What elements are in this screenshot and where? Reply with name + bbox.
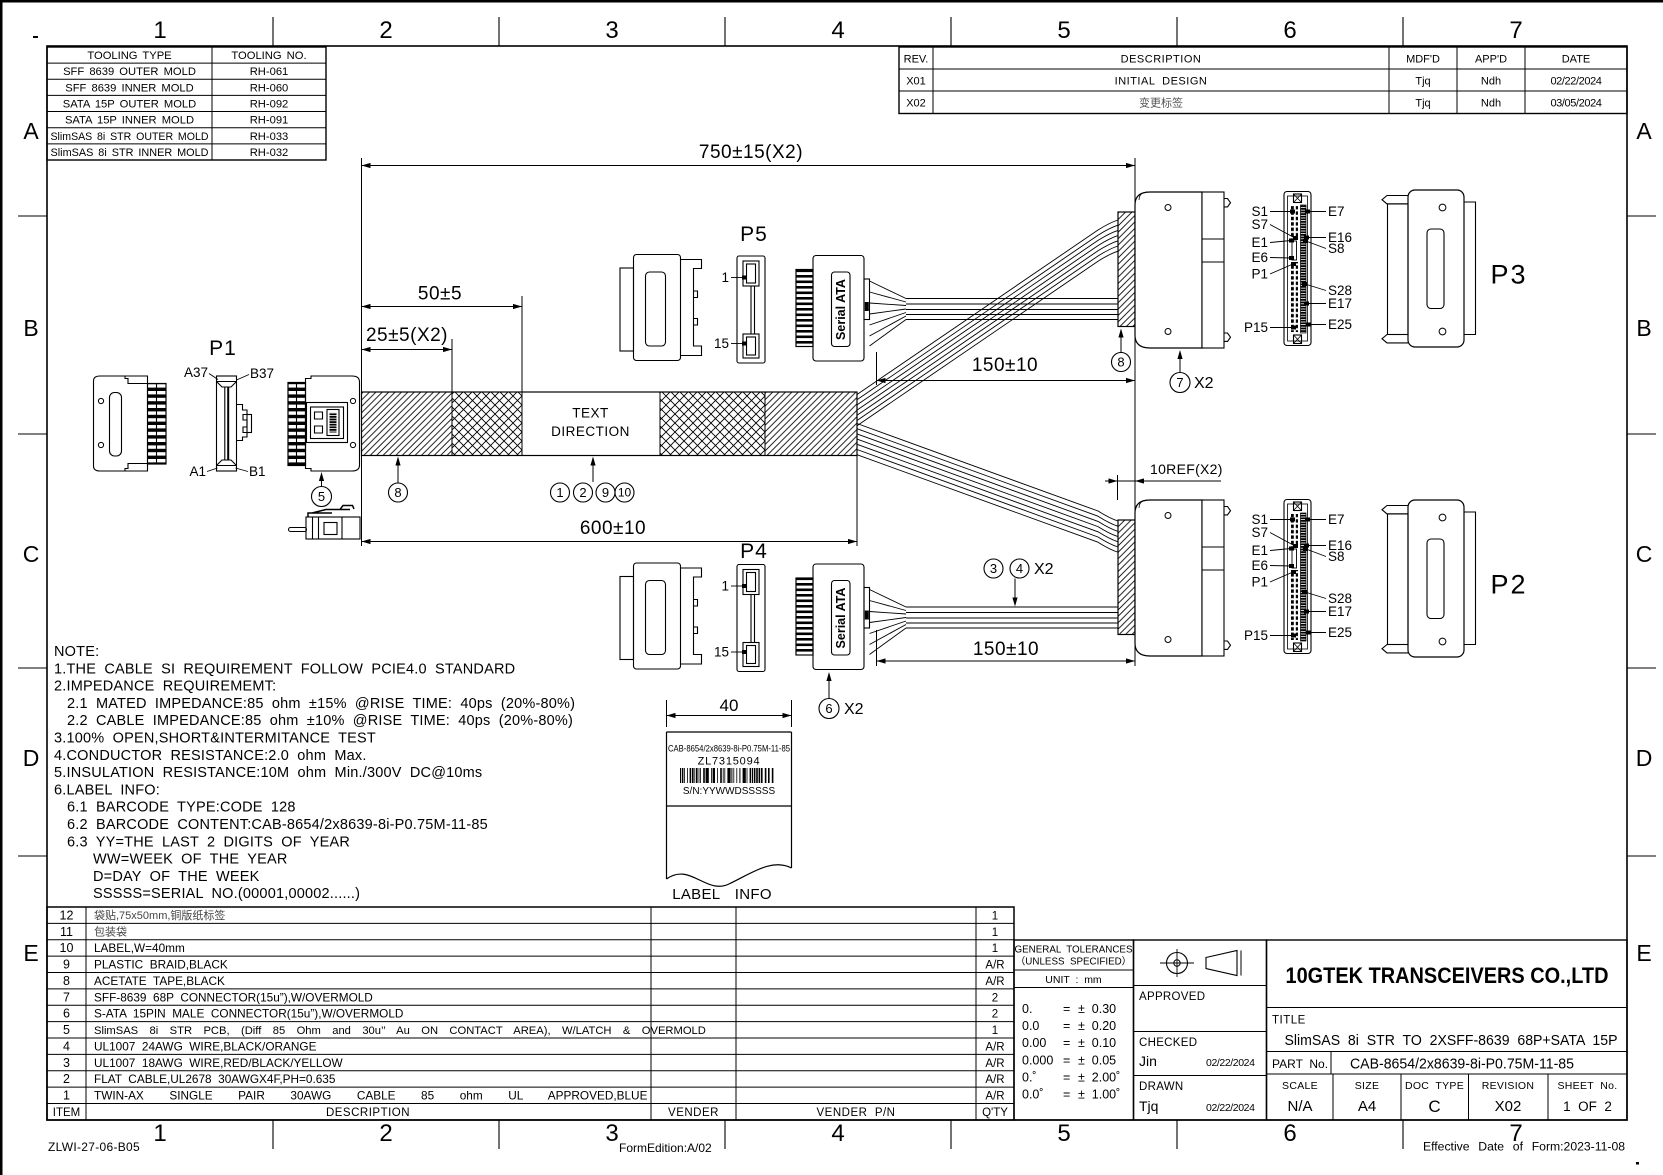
svg-text:TEXT: TEXT — [572, 406, 609, 421]
svg-text:P1: P1 — [1251, 267, 1268, 282]
svg-text:6.3 YY=THE LAST 2 DIGITS OF YE: 6.3 YY=THE LAST 2 DIGITS OF YEAR — [67, 834, 350, 850]
svg-text:4.CONDUCTOR RESISTANCE:2.0 ohm: 4.CONDUCTOR RESISTANCE:2.0 ohm Max. — [54, 748, 367, 764]
svg-text:X2: X2 — [1194, 375, 1214, 392]
svg-text:02/22/2024: 02/22/2024 — [1206, 1102, 1255, 1114]
svg-text:Tjq: Tjq — [1139, 1098, 1158, 1114]
svg-text:E7: E7 — [1328, 512, 1345, 527]
svg-text:VENDER P/N: VENDER P/N — [817, 1107, 896, 1119]
svg-text:袋贴,75x50mm,铜版纸标签: 袋贴,75x50mm,铜版纸标签 — [94, 908, 225, 922]
svg-text:P2: P2 — [1490, 570, 1527, 600]
svg-text:PLASTIC BRAID,BLACK: PLASTIC BRAID,BLACK — [94, 958, 228, 972]
svg-text:RH-092: RH-092 — [250, 98, 289, 110]
svg-text:A/R: A/R — [985, 1041, 1004, 1053]
svg-text:25±5(X2): 25±5(X2) — [366, 325, 448, 346]
svg-text:ZLWI-27-06-B05: ZLWI-27-06-B05 — [48, 1140, 140, 1154]
svg-text:ITEM: ITEM — [53, 1107, 80, 1119]
svg-text:5: 5 — [63, 1023, 70, 1037]
svg-text:6: 6 — [1283, 1120, 1296, 1147]
svg-text:Jin: Jin — [1139, 1053, 1157, 1069]
svg-text:8: 8 — [394, 485, 401, 500]
svg-text:1: 1 — [992, 943, 998, 955]
svg-text:SlimSAS 8i STR OUTER MOLD: SlimSAS 8i STR OUTER MOLD — [51, 131, 209, 143]
svg-text:=: = — [1063, 1002, 1070, 1016]
svg-text:7: 7 — [1509, 17, 1522, 44]
svg-text:7: 7 — [63, 990, 70, 1004]
svg-text:RH-032: RH-032 — [250, 147, 289, 159]
svg-text:UL1007 18AWG WIRE,RED/BLACK/: UL1007 18AWG WIRE,RED/BLACK/YELLOW — [94, 1056, 344, 1070]
svg-text:1 OF 2: 1 OF 2 — [1563, 1099, 1612, 1114]
svg-text:SlimSAS 8i STR TO 2XSFF-86: SlimSAS 8i STR TO 2XSFF-8639 68P+SATA 15… — [1285, 1033, 1618, 1049]
svg-text:C: C — [1636, 541, 1653, 567]
svg-text:X2: X2 — [1034, 561, 1054, 578]
svg-text:SHEET No.: SHEET No. — [1558, 1080, 1618, 1092]
svg-text:3: 3 — [63, 1056, 70, 1070]
svg-text:FormEdition:A/02: FormEdition:A/02 — [619, 1141, 712, 1155]
svg-text:Serial ATA: Serial ATA — [834, 279, 848, 340]
svg-text:± 0.20: ± 0.20 — [1078, 1019, 1116, 1033]
svg-text:SATA 15P OUTER MOLD: SATA 15P OUTER MOLD — [63, 98, 196, 110]
svg-text:Tjq: Tjq — [1415, 76, 1430, 88]
svg-text:P3: P3 — [1490, 260, 1527, 290]
svg-text:6: 6 — [63, 1007, 70, 1021]
svg-text:1: 1 — [153, 1120, 166, 1147]
svg-text:B1: B1 — [249, 464, 266, 479]
svg-text:2: 2 — [63, 1072, 70, 1086]
svg-text:CAB-8654/2x8639-8i-P0.75M-11-8: CAB-8654/2x8639-8i-P0.75M-11-85 — [1350, 1056, 1574, 1073]
svg-text:DESCRIPTION: DESCRIPTION — [1121, 54, 1202, 66]
svg-text:8: 8 — [1117, 355, 1124, 370]
svg-text:Tjq: Tjq — [1415, 98, 1430, 110]
svg-text:S8: S8 — [1328, 549, 1345, 564]
svg-text:0.: 0. — [1022, 1002, 1032, 1016]
svg-text:750±15(X2): 750±15(X2) — [699, 142, 803, 163]
svg-text:=: = — [1063, 1019, 1070, 1033]
svg-text:A37: A37 — [184, 365, 208, 380]
svg-text:E6: E6 — [1251, 250, 1268, 265]
svg-text:=: = — [1063, 1088, 1070, 1102]
svg-text:FLAT CABLE,UL2678 30AWGX4F,P: FLAT CABLE,UL2678 30AWGX4F,PH=0.635 — [94, 1072, 336, 1086]
svg-text:SlimSAS 8i STR PCB, (Diff: SlimSAS 8i STR PCB, (Diff 85 Ohm and 30u… — [94, 1025, 706, 1037]
svg-text:6.1 BARCODE TYPE:CODE 128: 6.1 BARCODE TYPE:CODE 128 — [67, 800, 296, 816]
svg-text:1: 1 — [992, 910, 998, 922]
svg-text:C: C — [23, 541, 40, 567]
svg-text:6.2 BARCODE CONTENT:CAB-8654/2: 6.2 BARCODE CONTENT:CAB-8654/2x8639-8i-P… — [67, 817, 488, 833]
svg-text:11: 11 — [60, 925, 73, 939]
svg-text:4: 4 — [63, 1039, 70, 1053]
svg-text:150±10: 150±10 — [972, 355, 1038, 376]
svg-text:9: 9 — [602, 485, 609, 500]
svg-text:6.LABEL INFO:: 6.LABEL INFO: — [54, 782, 160, 798]
svg-text:± 2.00˚: ± 2.00˚ — [1078, 1070, 1120, 1084]
svg-text:APP'D: APP'D — [1475, 54, 1507, 66]
svg-text:A: A — [1636, 118, 1652, 144]
svg-text:E6: E6 — [1251, 558, 1268, 573]
svg-text:2: 2 — [379, 1120, 392, 1147]
svg-text:P5: P5 — [740, 223, 768, 246]
svg-text:0.˚: 0.˚ — [1022, 1070, 1037, 1084]
svg-text:A: A — [23, 118, 39, 144]
svg-text:LABEL,W=40mm: LABEL,W=40mm — [94, 941, 185, 955]
svg-text:1: 1 — [153, 17, 166, 44]
svg-text:CHECKED: CHECKED — [1139, 1037, 1197, 1049]
svg-text:4: 4 — [831, 1120, 844, 1147]
svg-text:6: 6 — [1283, 17, 1296, 44]
svg-text:9: 9 — [63, 958, 70, 972]
svg-text:E: E — [1636, 940, 1651, 966]
svg-text:RH-060: RH-060 — [250, 82, 289, 94]
svg-text:40: 40 — [720, 696, 739, 715]
svg-text:APPROVED: APPROVED — [1139, 991, 1205, 1003]
svg-text:± 0.30: ± 0.30 — [1078, 1002, 1116, 1016]
svg-text:02/22/2024: 02/22/2024 — [1550, 76, 1601, 88]
svg-text:1: 1 — [721, 579, 729, 594]
svg-text:E25: E25 — [1328, 625, 1352, 640]
svg-text:± 0.05: ± 0.05 — [1078, 1053, 1116, 1067]
svg-text:REVISION: REVISION — [1482, 1080, 1535, 1092]
svg-text:E1: E1 — [1251, 235, 1268, 250]
svg-text:A/R: A/R — [985, 1091, 1004, 1103]
svg-text:50±5: 50±5 — [418, 284, 462, 305]
svg-text:3: 3 — [605, 17, 618, 44]
svg-text:2.2 CABLE IMPEDANCE:85 ohm ±10: 2.2 CABLE IMPEDANCE:85 ohm ±10% @RISE TI… — [67, 713, 573, 729]
svg-text:TOOLING TYPE: TOOLING TYPE — [87, 50, 171, 62]
svg-text:5.INSULATION RESISTANCE:10M oh: 5.INSULATION RESISTANCE:10M ohm Min./300… — [54, 765, 482, 781]
svg-text:2: 2 — [379, 17, 392, 44]
svg-text:RH-033: RH-033 — [250, 131, 289, 143]
svg-text:3: 3 — [605, 1120, 618, 1147]
svg-text:S/N:YYWWDSSSSS: S/N:YYWWDSSSSS — [683, 786, 776, 797]
svg-text:D=DAY OF THE WEEK: D=DAY OF THE WEEK — [93, 869, 260, 885]
svg-text:D: D — [23, 745, 40, 771]
svg-text:RH-061: RH-061 — [250, 66, 289, 78]
svg-text:Q'TY: Q'TY — [982, 1107, 1008, 1119]
svg-text:1: 1 — [556, 485, 563, 500]
svg-text:3: 3 — [990, 561, 997, 576]
svg-text:0.0: 0.0 — [1022, 1019, 1039, 1033]
svg-text:1: 1 — [721, 270, 729, 285]
svg-text:E7: E7 — [1328, 204, 1345, 219]
svg-text:1.THE CABLE SI REQUIREMENT FOL: 1.THE CABLE SI REQUIREMENT FOLLOW PCIE4.… — [54, 661, 515, 677]
svg-text:SIZE: SIZE — [1355, 1080, 1380, 1092]
svg-text:6: 6 — [825, 701, 832, 716]
svg-text:DATE: DATE — [1562, 54, 1591, 66]
svg-text:Ndh: Ndh — [1481, 98, 1501, 110]
svg-text:UNIT : mm: UNIT : mm — [1045, 974, 1102, 986]
svg-text:DOC TYPE: DOC TYPE — [1405, 1080, 1464, 1092]
svg-text:ZL7315094: ZL7315094 — [698, 756, 761, 768]
svg-text:NOTE:: NOTE: — [54, 644, 99, 660]
svg-text:DRAWN: DRAWN — [1139, 1081, 1184, 1093]
svg-text:A/R: A/R — [985, 960, 1004, 972]
svg-text:2.1 MATED IMPEDANCE:85 ohm ±15: 2.1 MATED IMPEDANCE:85 ohm ±15% @RISE TI… — [67, 696, 575, 712]
svg-text:TOOLING NO.: TOOLING NO. — [231, 50, 306, 62]
svg-text:A/R: A/R — [985, 1058, 1004, 1070]
svg-text:Effective Date of Form:2023: Effective Date of Form:2023-11-08 — [1423, 1140, 1625, 1154]
svg-text:7: 7 — [1176, 375, 1183, 390]
svg-text:S-ATA 15PIN MALE CONNECTOR(: S-ATA 15PIN MALE CONNECTOR(15u”),W/OVERM… — [94, 1007, 403, 1021]
svg-text:WW=WEEK OF THE YEAR: WW=WEEK OF THE YEAR — [93, 852, 288, 868]
svg-text:0.000: 0.000 — [1022, 1053, 1053, 1067]
svg-text:± 1.00˚: ± 1.00˚ — [1078, 1088, 1120, 1102]
svg-text:P1: P1 — [209, 337, 237, 360]
svg-text:S7: S7 — [1251, 217, 1268, 232]
svg-text:1: 1 — [992, 927, 998, 939]
svg-text:P15: P15 — [1244, 320, 1268, 335]
svg-text:Serial ATA: Serial ATA — [834, 588, 848, 649]
svg-text:MDF'D: MDF'D — [1406, 54, 1440, 66]
svg-text:5: 5 — [1057, 17, 1070, 44]
svg-text:S8: S8 — [1328, 241, 1345, 256]
svg-text:X2: X2 — [844, 701, 864, 718]
svg-text:X02: X02 — [906, 98, 926, 110]
svg-text:P15: P15 — [1244, 628, 1268, 643]
svg-text:CAB-8654/2x8639-8i-P0.75M-11-8: CAB-8654/2x8639-8i-P0.75M-11-85 — [668, 744, 790, 755]
svg-text:5: 5 — [318, 489, 325, 504]
svg-text:包装袋: 包装袋 — [94, 924, 127, 938]
svg-text:0.0˚: 0.0˚ — [1022, 1088, 1044, 1102]
svg-text:S7: S7 — [1251, 525, 1268, 540]
svg-text:SSSSS=SERIAL NO.(00001,00002..: SSSSS=SERIAL NO.(00001,00002......) — [93, 886, 360, 902]
svg-text:E: E — [23, 940, 38, 966]
svg-text:5: 5 — [1057, 1120, 1070, 1147]
svg-text:10: 10 — [60, 941, 74, 955]
svg-text:D: D — [1636, 745, 1653, 771]
svg-text:SFF 8639 OUTER MOLD: SFF 8639 OUTER MOLD — [63, 66, 196, 78]
svg-text:2: 2 — [992, 1009, 998, 1021]
svg-text:TITLE: TITLE — [1272, 1015, 1306, 1027]
svg-text:PART No.: PART No. — [1272, 1057, 1328, 1071]
svg-text:变更标签: 变更标签 — [1139, 96, 1183, 110]
svg-text:DESCRIPTION: DESCRIPTION — [326, 1107, 410, 1119]
svg-text:SATA 15P INNER MOLD: SATA 15P INNER MOLD — [65, 115, 194, 127]
svg-text:1: 1 — [992, 1025, 998, 1037]
svg-text:2.IMPEDANCE REQUIREMEMT:: 2.IMPEDANCE REQUIREMEMT: — [54, 679, 276, 695]
svg-text:P1: P1 — [1251, 575, 1268, 590]
svg-text:8: 8 — [63, 974, 70, 988]
svg-text:REV.: REV. — [904, 54, 929, 66]
svg-text:A1: A1 — [189, 464, 206, 479]
svg-text:=: = — [1063, 1036, 1070, 1050]
svg-text:1: 1 — [63, 1089, 70, 1103]
svg-text:15: 15 — [714, 645, 729, 660]
svg-text:SlimSAS 8i STR INNER MOLD: SlimSAS 8i STR INNER MOLD — [51, 147, 209, 159]
svg-text:E25: E25 — [1328, 317, 1352, 332]
svg-text:E17: E17 — [1328, 296, 1352, 311]
svg-text:INITIAL DESIGN: INITIAL DESIGN — [1115, 76, 1208, 88]
svg-text:=: = — [1063, 1053, 1070, 1067]
svg-text:10GTEK TRANSCEIVERS CO.,LTD: 10GTEK TRANSCEIVERS CO.,LTD — [1286, 963, 1609, 988]
svg-text:E17: E17 — [1328, 604, 1352, 619]
svg-text:ACETATE TAPE,BLACK: ACETATE TAPE,BLACK — [94, 974, 225, 988]
svg-text:4: 4 — [1016, 561, 1023, 576]
svg-text:Ndh: Ndh — [1481, 76, 1501, 88]
svg-text:10: 10 — [618, 486, 632, 500]
svg-text:600±10: 600±10 — [580, 518, 646, 539]
svg-text:SCALE: SCALE — [1282, 1080, 1318, 1092]
svg-text:VENDER: VENDER — [668, 1107, 719, 1119]
svg-text:02/22/2024: 02/22/2024 — [1206, 1057, 1255, 1069]
svg-text:N/A: N/A — [1287, 1098, 1312, 1115]
svg-text:15: 15 — [714, 336, 729, 351]
svg-text:SFF-8639 68P CONNECTOR(15u”): SFF-8639 68P CONNECTOR(15u”),W/OVERMOLD — [94, 990, 373, 1004]
svg-text:RH-091: RH-091 — [250, 115, 289, 127]
svg-text:A4: A4 — [1358, 1098, 1376, 1115]
svg-text:2: 2 — [992, 992, 998, 1004]
svg-text:12: 12 — [60, 908, 74, 922]
svg-text:TWIN-AX SINGLE PAIR 30AWG: TWIN-AX SINGLE PAIR 30AWG CABLE 85 ohm U… — [94, 1089, 648, 1103]
svg-text:C: C — [1428, 1097, 1440, 1116]
svg-text:03/05/2024: 03/05/2024 — [1550, 98, 1601, 110]
svg-text:0.00: 0.00 — [1022, 1036, 1046, 1050]
svg-text:B: B — [1636, 315, 1651, 341]
svg-text:B37: B37 — [250, 366, 274, 381]
svg-text:± 0.10: ± 0.10 — [1078, 1036, 1116, 1050]
svg-text:LABEL INFO: LABEL INFO — [672, 886, 772, 903]
svg-text:X02: X02 — [1495, 1098, 1522, 1115]
svg-text:10REF(X2): 10REF(X2) — [1150, 461, 1223, 477]
svg-text:DIRECTION: DIRECTION — [551, 424, 630, 439]
svg-text:4: 4 — [831, 17, 844, 44]
svg-text:SFF 8639 INNER MOLD: SFF 8639 INNER MOLD — [65, 82, 193, 94]
svg-text:UL1007 24AWG WIRE,BLACK/ORAN: UL1007 24AWG WIRE,BLACK/ORANGE — [94, 1039, 317, 1053]
svg-text:A/R: A/R — [985, 976, 1004, 988]
svg-text:150±10: 150±10 — [973, 639, 1039, 660]
svg-text:P4: P4 — [740, 540, 768, 563]
svg-text:2: 2 — [579, 485, 586, 500]
svg-text:=: = — [1063, 1070, 1070, 1084]
svg-text:B: B — [23, 315, 38, 341]
svg-text:X01: X01 — [906, 76, 926, 88]
svg-text:A/R: A/R — [985, 1074, 1004, 1086]
svg-text:GENERAL TOLERANCES: GENERAL TOLERANCES — [1015, 945, 1133, 956]
svg-text:（UNLESS SPECIFIED）: （UNLESS SPECIFIED） — [1016, 956, 1132, 968]
svg-text:3.100% OPEN,SHORT&INTERMITANCE: 3.100% OPEN,SHORT&INTERMITANCE TEST — [54, 731, 376, 747]
svg-text:E1: E1 — [1251, 543, 1268, 558]
